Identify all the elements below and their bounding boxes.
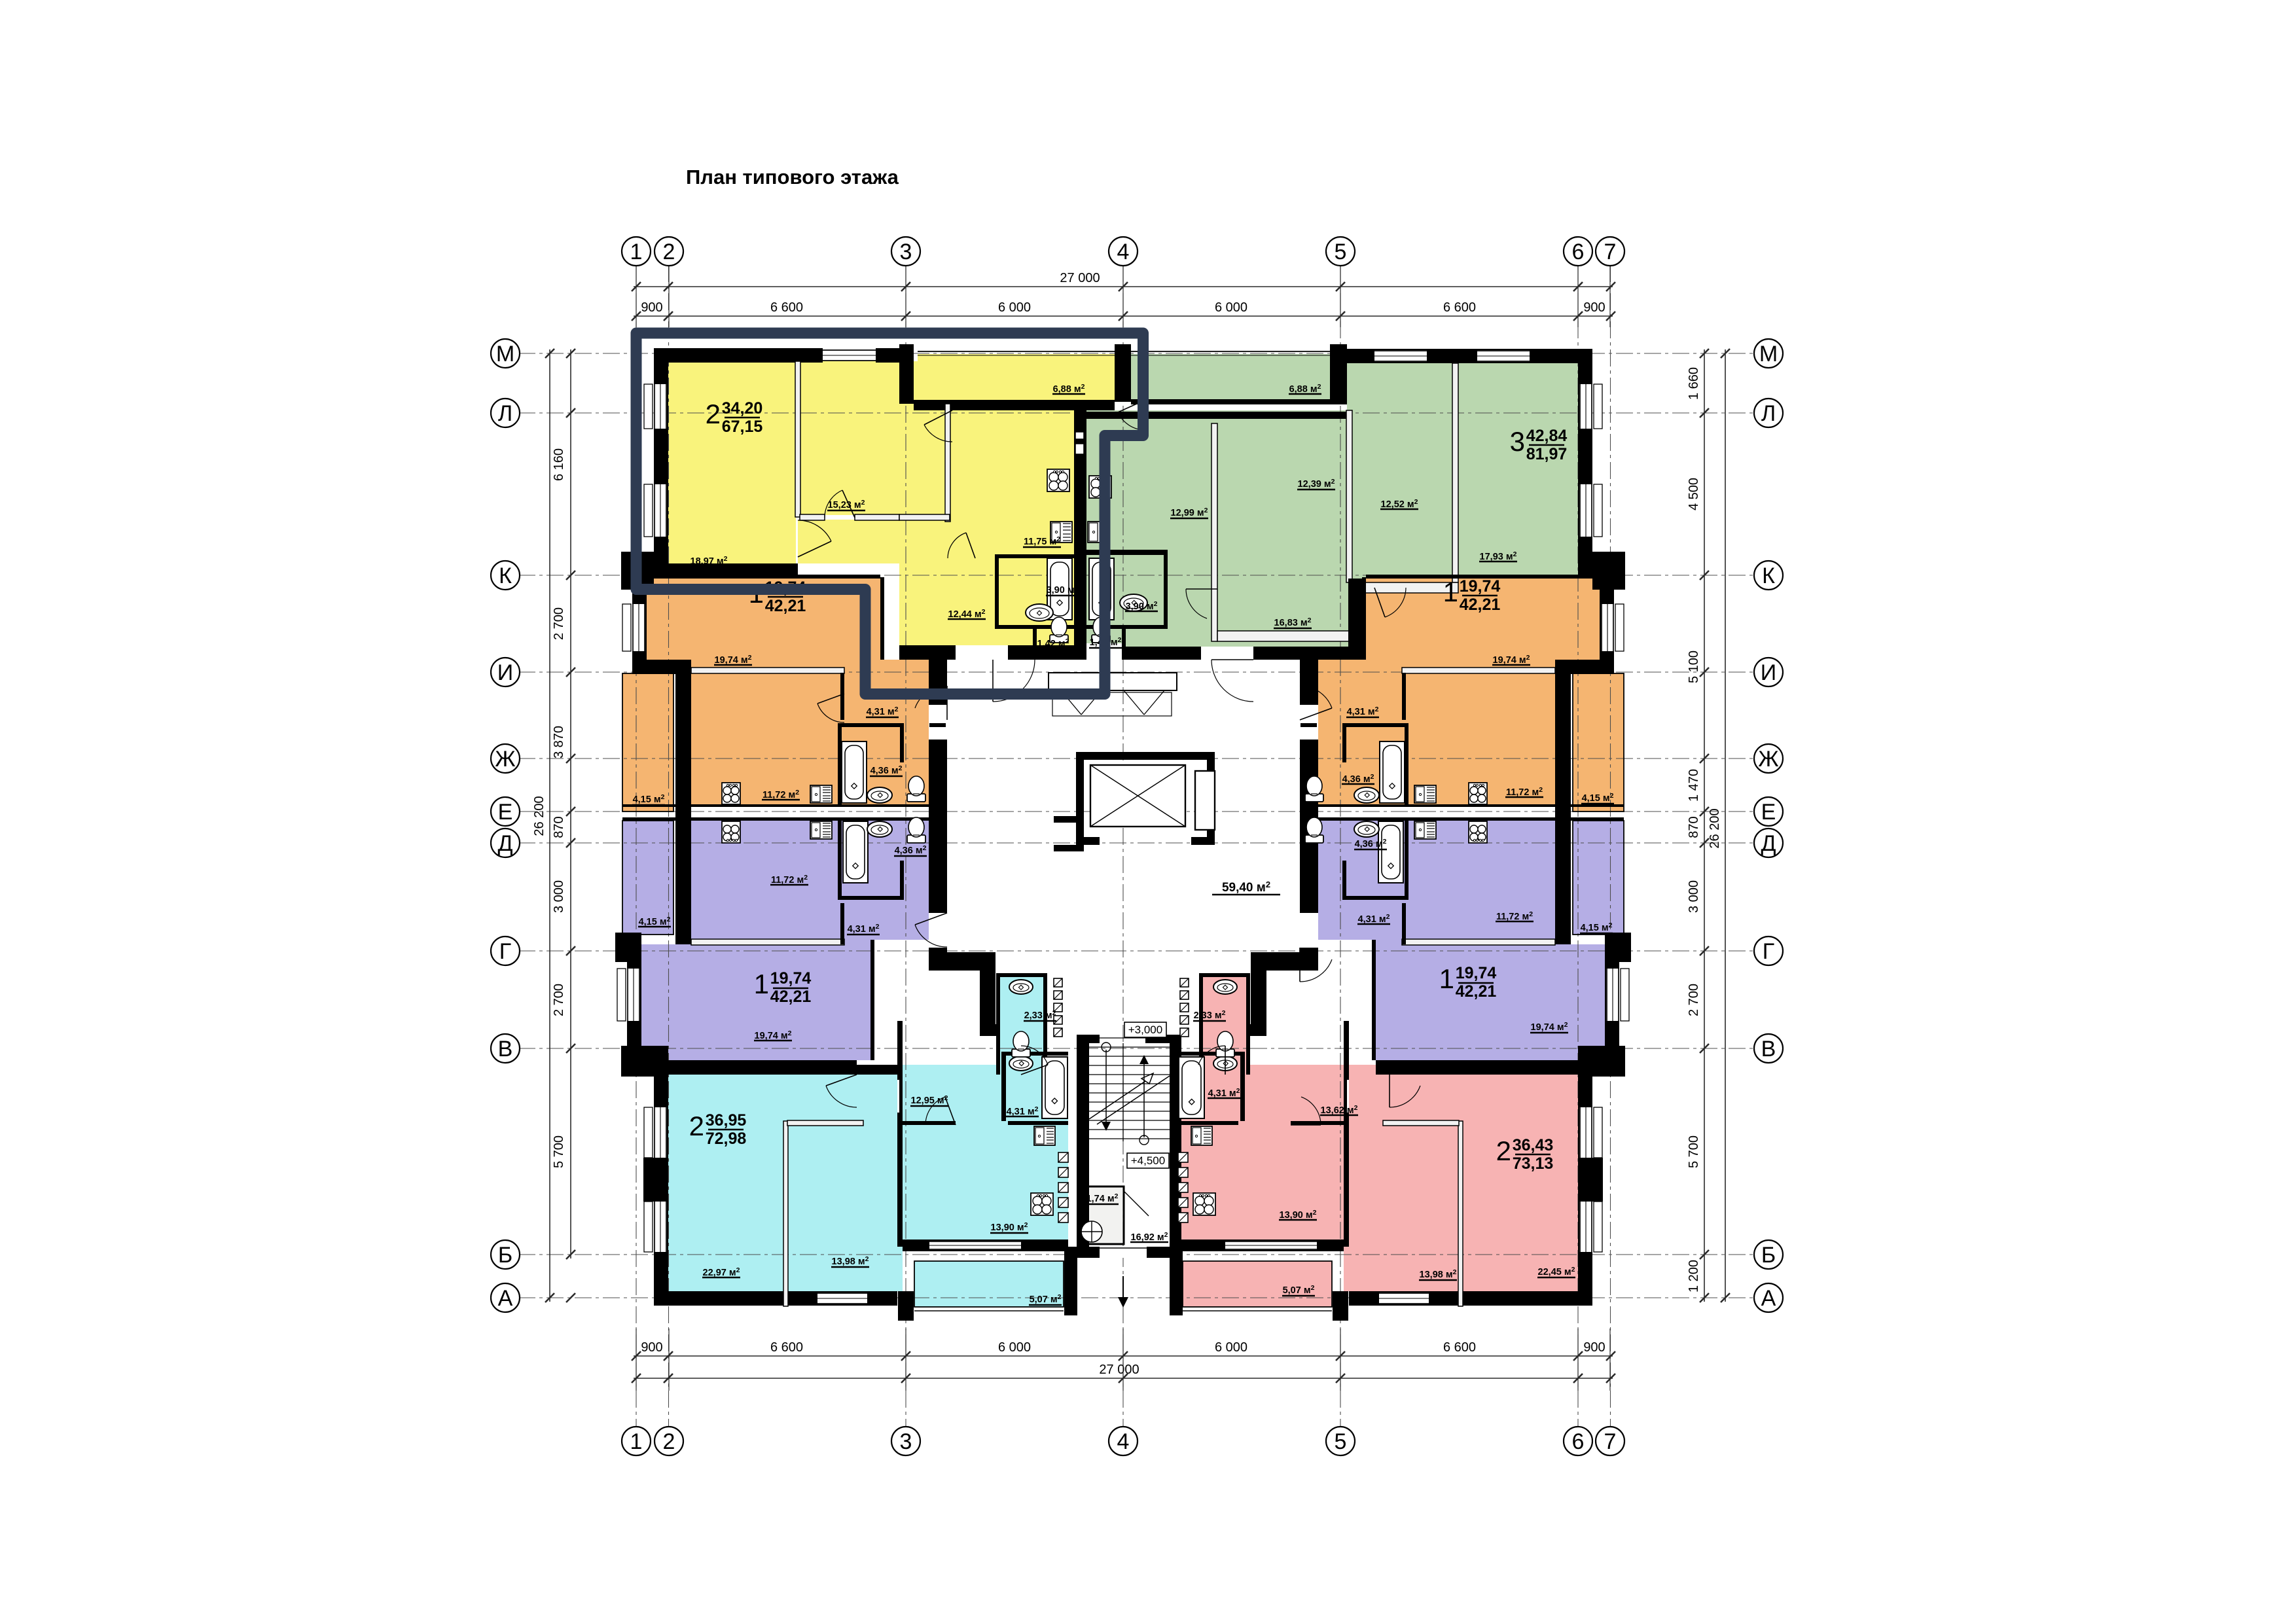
svg-text:+3,000: +3,000 <box>1128 1024 1162 1036</box>
svg-text:4,36 м2: 4,36 м2 <box>1355 838 1387 849</box>
svg-text:7: 7 <box>1604 240 1617 264</box>
svg-text:42,21: 42,21 <box>1460 596 1501 614</box>
svg-text:12,52 м2: 12,52 м2 <box>1381 498 1418 510</box>
svg-text:Г: Г <box>1763 939 1774 964</box>
svg-text:19,74 м2: 19,74 м2 <box>1531 1021 1568 1033</box>
svg-text:4,31 м2: 4,31 м2 <box>1358 913 1390 925</box>
svg-text:81,97: 81,97 <box>1526 445 1568 463</box>
svg-text:План типового этажа: План типового этажа <box>686 166 899 188</box>
svg-text:2,33 м2: 2,33 м2 <box>1194 1009 1226 1021</box>
svg-text:2: 2 <box>663 1429 675 1454</box>
svg-text:Л: Л <box>1761 401 1776 426</box>
svg-text:6,88 м2: 6,88 м2 <box>1053 383 1085 395</box>
svg-text:67,15: 67,15 <box>722 418 763 436</box>
svg-text:2 700: 2 700 <box>1687 984 1701 1016</box>
svg-text:22,97 м2: 22,97 м2 <box>703 1266 740 1278</box>
svg-text:4: 4 <box>1117 240 1130 264</box>
svg-text:36,43: 36,43 <box>1513 1136 1554 1154</box>
svg-text:1: 1 <box>630 1429 643 1454</box>
svg-text:4,31 м2: 4,31 м2 <box>1007 1105 1039 1117</box>
svg-text:6 000: 6 000 <box>1215 1340 1247 1355</box>
svg-text:5 100: 5 100 <box>1687 651 1701 683</box>
svg-text:А: А <box>498 1286 513 1311</box>
svg-text:Б: Б <box>498 1243 512 1268</box>
svg-text:1: 1 <box>1443 577 1458 607</box>
svg-text:А: А <box>1761 1286 1776 1311</box>
svg-text:4,15 м2: 4,15 м2 <box>639 916 671 927</box>
svg-text:11,72 м2: 11,72 м2 <box>1506 786 1543 798</box>
svg-text:Ж: Ж <box>495 747 515 772</box>
svg-text:11,72 м2: 11,72 м2 <box>1496 910 1533 922</box>
svg-text:4,15 м2: 4,15 м2 <box>1581 921 1613 933</box>
svg-text:7: 7 <box>1604 1429 1617 1454</box>
svg-text:12,95 м2: 12,95 м2 <box>911 1094 948 1106</box>
svg-text:И: И <box>497 660 513 685</box>
svg-text:11,72 м2: 11,72 м2 <box>771 874 808 885</box>
svg-text:К: К <box>499 563 512 588</box>
svg-text:3 000: 3 000 <box>552 880 566 913</box>
svg-text:6 600: 6 600 <box>1443 1340 1476 1355</box>
svg-text:6 160: 6 160 <box>552 448 566 481</box>
svg-text:42,21: 42,21 <box>770 988 812 1006</box>
svg-text:2,33 м2: 2,33 м2 <box>1024 1009 1056 1021</box>
svg-text:4,31 м2: 4,31 м2 <box>1208 1087 1240 1099</box>
svg-text:3 870: 3 870 <box>552 726 566 758</box>
svg-text:6 000: 6 000 <box>1215 300 1247 315</box>
svg-text:4,36 м2: 4,36 м2 <box>870 764 903 776</box>
svg-text:1: 1 <box>1439 963 1454 994</box>
svg-text:К: К <box>1762 563 1775 588</box>
svg-text:13,62 м2: 13,62 м2 <box>1321 1104 1358 1116</box>
svg-text:5: 5 <box>1335 240 1347 264</box>
svg-text:36,95: 36,95 <box>706 1111 747 1130</box>
svg-text:6: 6 <box>1572 240 1585 264</box>
svg-text:4 500: 4 500 <box>1687 478 1701 510</box>
svg-text:6 000: 6 000 <box>998 300 1031 315</box>
svg-text:4,36 м2: 4,36 м2 <box>1342 773 1374 785</box>
svg-text:26 200: 26 200 <box>532 796 547 836</box>
svg-text:1 200: 1 200 <box>1687 1260 1701 1293</box>
svg-text:26 200: 26 200 <box>1708 808 1722 848</box>
svg-text:5 700: 5 700 <box>552 1135 566 1168</box>
svg-text:1: 1 <box>754 969 769 999</box>
svg-text:19,74 м2: 19,74 м2 <box>715 654 752 666</box>
svg-text:2: 2 <box>689 1111 704 1141</box>
svg-text:2 700: 2 700 <box>552 984 566 1016</box>
svg-text:16,83 м2: 16,83 м2 <box>1274 616 1312 628</box>
svg-text:870: 870 <box>552 816 566 838</box>
svg-text:+4,500: +4,500 <box>1131 1154 1165 1167</box>
svg-text:4,31 м2: 4,31 м2 <box>848 923 880 935</box>
svg-text:13,98 м2: 13,98 м2 <box>832 1255 869 1267</box>
svg-text:2: 2 <box>706 399 721 429</box>
svg-text:4,15 м2: 4,15 м2 <box>633 793 665 805</box>
svg-text:2 700: 2 700 <box>552 607 566 640</box>
svg-text:4,15 м2: 4,15 м2 <box>1582 792 1614 804</box>
svg-text:2: 2 <box>1496 1135 1511 1166</box>
svg-text:6: 6 <box>1572 1429 1585 1454</box>
svg-text:22,45 м2: 22,45 м2 <box>1538 1266 1575 1277</box>
svg-text:6 600: 6 600 <box>770 1340 803 1355</box>
svg-text:6 000: 6 000 <box>998 1340 1031 1355</box>
svg-text:19,74: 19,74 <box>1460 577 1501 596</box>
svg-text:19,74 м2: 19,74 м2 <box>1493 654 1530 666</box>
svg-text:5: 5 <box>1335 1429 1347 1454</box>
svg-text:870: 870 <box>1687 816 1701 838</box>
svg-text:1: 1 <box>630 240 643 264</box>
svg-text:Д: Д <box>497 831 512 856</box>
svg-text:Д: Д <box>1761 831 1776 856</box>
svg-text:13,98 м2: 13,98 м2 <box>1420 1268 1457 1280</box>
svg-text:3: 3 <box>900 1429 912 1454</box>
svg-text:Ж: Ж <box>1758 747 1778 772</box>
svg-text:Л: Л <box>498 401 512 426</box>
svg-text:1 470: 1 470 <box>1687 769 1701 802</box>
svg-text:3 000: 3 000 <box>1687 880 1701 913</box>
svg-text:Е: Е <box>498 800 513 825</box>
svg-text:М: М <box>1759 342 1778 366</box>
svg-text:2: 2 <box>663 240 675 264</box>
svg-text:6,88 м2: 6,88 м2 <box>1289 383 1321 395</box>
svg-text:6 600: 6 600 <box>1443 300 1476 315</box>
svg-text:11,72 м2: 11,72 м2 <box>762 789 799 800</box>
svg-text:3,90 м2: 3,90 м2 <box>1047 584 1079 596</box>
svg-text:В: В <box>1761 1037 1776 1061</box>
svg-text:34,20: 34,20 <box>722 399 763 418</box>
svg-text:900: 900 <box>641 1340 662 1355</box>
svg-text:4,31 м2: 4,31 м2 <box>867 705 899 717</box>
svg-text:12,39 м2: 12,39 м2 <box>1298 478 1335 490</box>
svg-text:900: 900 <box>1583 300 1605 315</box>
svg-text:900: 900 <box>641 300 662 315</box>
svg-text:3: 3 <box>900 240 912 264</box>
svg-text:Г: Г <box>499 939 511 964</box>
svg-text:900: 900 <box>1583 1340 1605 1355</box>
svg-text:В: В <box>498 1037 513 1061</box>
svg-text:18,97 м2: 18,97 м2 <box>691 555 728 567</box>
svg-text:4,31 м2: 4,31 м2 <box>1347 705 1379 717</box>
svg-text:4: 4 <box>1117 1429 1130 1454</box>
svg-text:13,90 м2: 13,90 м2 <box>1280 1209 1317 1221</box>
svg-text:19,74 м2: 19,74 м2 <box>755 1029 792 1041</box>
svg-text:42,21: 42,21 <box>765 597 806 615</box>
svg-text:15,23 м2: 15,23 м2 <box>828 499 865 510</box>
svg-text:59,40 м2: 59,40 м2 <box>1222 880 1270 895</box>
svg-text:12,99 м2: 12,99 м2 <box>1171 507 1208 518</box>
svg-text:1,42 м2: 1,42 м2 <box>1037 637 1069 649</box>
svg-text:42,21: 42,21 <box>1456 982 1497 1001</box>
svg-text:Е: Е <box>1761 800 1776 825</box>
svg-text:1 660: 1 660 <box>1687 367 1701 400</box>
svg-text:17,93 м2: 17,93 м2 <box>1480 550 1517 562</box>
svg-text:11,75 м2: 11,75 м2 <box>1024 535 1060 547</box>
svg-text:5,07 м2: 5,07 м2 <box>1030 1293 1062 1305</box>
svg-text:5 700: 5 700 <box>1687 1135 1701 1168</box>
svg-text:4,36 м2: 4,36 м2 <box>895 844 927 856</box>
svg-text:3: 3 <box>1510 426 1525 457</box>
svg-text:6 600: 6 600 <box>770 300 803 315</box>
svg-text:5,07 м2: 5,07 м2 <box>1283 1284 1315 1296</box>
svg-text:19,74: 19,74 <box>1456 964 1497 982</box>
svg-text:72,98: 72,98 <box>706 1130 747 1148</box>
svg-text:42,84: 42,84 <box>1526 427 1568 445</box>
svg-text:12,44 м2: 12,44 м2 <box>948 608 986 620</box>
svg-text:27 000: 27 000 <box>1060 271 1100 285</box>
svg-text:73,13: 73,13 <box>1513 1154 1554 1173</box>
svg-text:И: И <box>1761 660 1776 685</box>
svg-text:1,74 м2: 1,74 м2 <box>1086 1192 1119 1204</box>
svg-text:Б: Б <box>1761 1243 1776 1268</box>
svg-text:3,90 м2: 3,90 м2 <box>1126 600 1158 612</box>
svg-text:16,92 м2: 16,92 м2 <box>1131 1231 1168 1243</box>
svg-text:19,74: 19,74 <box>770 969 812 988</box>
svg-text:М: М <box>496 342 514 366</box>
svg-text:13,90 м2: 13,90 м2 <box>991 1221 1028 1233</box>
svg-text:27 000: 27 000 <box>1099 1363 1139 1377</box>
